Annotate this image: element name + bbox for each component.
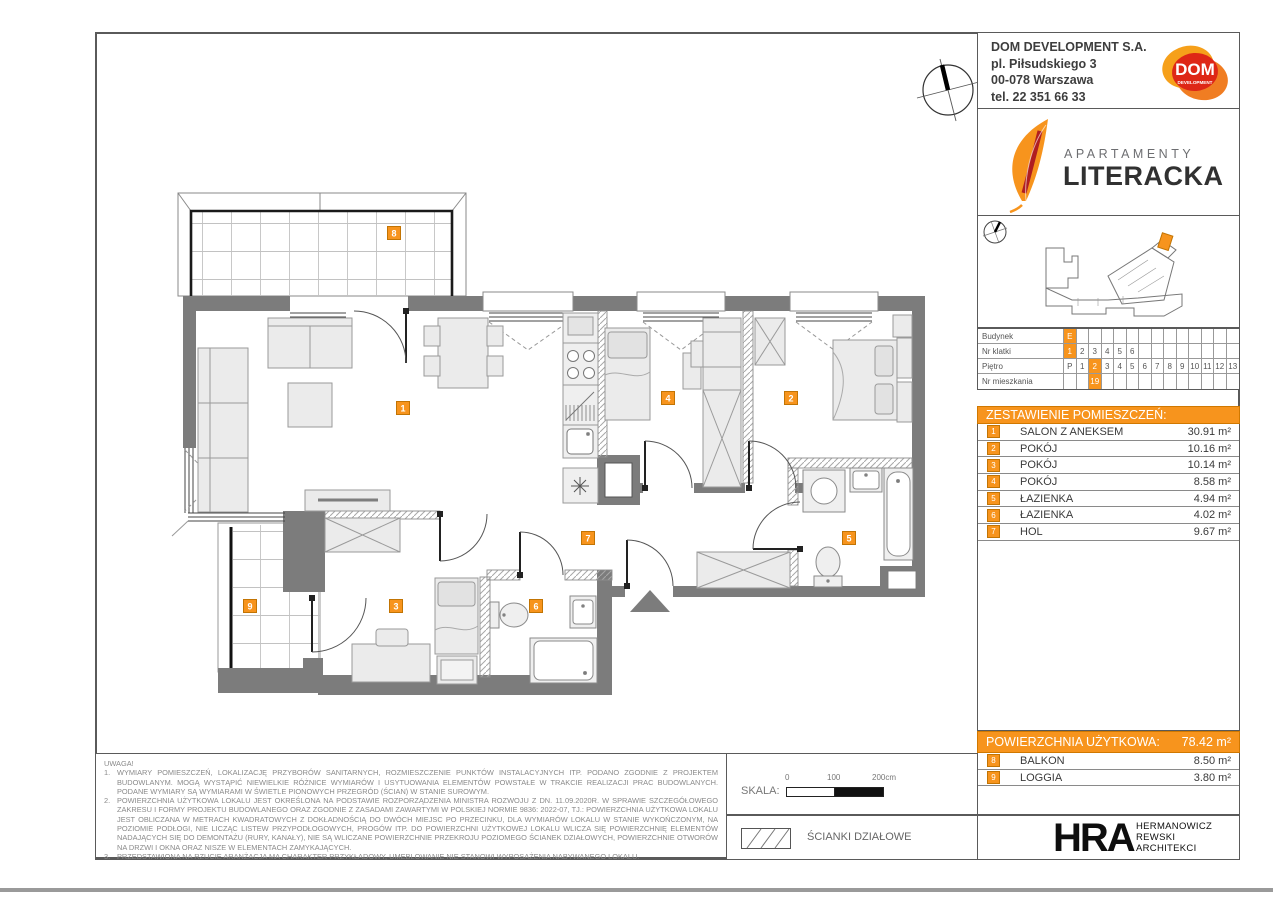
room2-furniture [755, 315, 912, 422]
architect-cell: HRA HERMANOWICZ REWSKI ARCHITEKCI [977, 815, 1240, 860]
badge-9: 9 [244, 600, 257, 613]
svg-text:2: 2 [788, 394, 793, 404]
legend-cell: ŚCIANKI DZIAŁOWE [726, 815, 978, 860]
scale-cell: SKALA: 0 100 200cm [726, 753, 978, 815]
scale-tick-100: 100 [827, 773, 840, 782]
svg-text:9: 9 [247, 602, 252, 612]
note-item: 2.POWIERZCHNIA UŻYTKOWA LOKALU JEST OKRE… [104, 796, 718, 852]
badge-3: 3 [390, 600, 403, 613]
svg-text:1: 1 [400, 404, 405, 414]
partition-wall-legend-icon [741, 828, 791, 849]
project-name-line1: APARTAMENTY [1064, 147, 1194, 161]
company-address2: 00-078 Warszawa [991, 72, 1147, 89]
mieszkanie-value: 19 [1089, 374, 1102, 389]
room-number-badge: 1 [987, 425, 1000, 438]
company-address1: pl. Piłsudskiego 3 [991, 56, 1147, 73]
room-row: 8BALKON8.50 m² [978, 753, 1239, 770]
badge-2: 2 [785, 392, 798, 405]
legend-label: ŚCIANKI DZIAŁOWE [807, 831, 912, 843]
project-name-line2: LITERACKA [1063, 163, 1224, 189]
room-number-badge: 3 [987, 459, 1000, 472]
company-name: DOM DEVELOPMENT S.A. [991, 39, 1147, 56]
room-row: 1SALON Z ANEKSEM30.91 m² [978, 424, 1239, 441]
klatka-selected: 1 [1064, 344, 1077, 358]
svg-text:7: 7 [585, 534, 590, 544]
badge-7: 7 [582, 532, 595, 545]
badge-4: 4 [662, 392, 675, 405]
svg-text:3: 3 [393, 602, 398, 612]
room-row: 9LOGGIA3.80 m² [978, 770, 1239, 787]
badge-5: 5 [843, 532, 856, 545]
unit-info-table: Budynek E Nr klatki 1 2 3 4 5 6 Piętro P… [977, 328, 1240, 390]
room-row: 2POKÓJ10.16 m² [978, 441, 1239, 458]
site-map [978, 216, 1241, 329]
room-number-badge: 4 [987, 475, 1000, 488]
feather-icon [996, 113, 1058, 213]
company-phone: tel. 22 351 66 33 [991, 89, 1147, 106]
kitchen [563, 313, 598, 503]
project-logo-cell: APARTAMENTY LITERACKA [977, 108, 1240, 216]
balcony [178, 193, 466, 296]
scale-tick-200: 200cm [872, 773, 896, 782]
usable-area-bar: POWIERZCHNIA UŻYTKOWA: 78.42 m² [977, 731, 1240, 753]
svg-text:6: 6 [533, 602, 538, 612]
room-row: 5ŁAZIENKA4.94 m² [978, 491, 1239, 508]
svg-text:8: 8 [391, 229, 396, 239]
scale-bar-white [786, 787, 836, 797]
badge-6: 6 [530, 600, 543, 613]
room3-furniture [352, 578, 478, 684]
room-row: 4POKÓJ8.58 m² [978, 474, 1239, 491]
svg-text:DEVELOPMENT: DEVELOPMENT [1178, 80, 1213, 85]
pietro-selected: 2 [1089, 359, 1102, 373]
badge-1: 1 [397, 402, 410, 415]
dom-development-logo-icon: DOM DEVELOPMENT [1158, 41, 1230, 103]
room-row: 6ŁAZIENKA4.02 m² [978, 507, 1239, 524]
bath5-shelf [888, 571, 916, 589]
table-row-mieszkanie: Nr mieszkania 19 [978, 374, 1239, 389]
entrance-arrow [630, 590, 670, 612]
room-number-badge: 8 [987, 754, 1000, 767]
scale-label: SKALA: [741, 785, 780, 797]
room-number-badge: 2 [987, 442, 1000, 455]
architect-logo: HRA [1053, 816, 1134, 861]
scale-bar-black [834, 787, 884, 797]
room-number-badge: 7 [987, 525, 1000, 538]
table-row-budynek: Budynek E [978, 329, 1239, 344]
room-number-badge: 9 [987, 771, 1000, 784]
budynek-value: E [1064, 329, 1077, 343]
note-item: 1.WYMIARY POMIESZCZEŃ, LOKALIZACJĘ PRZYB… [104, 768, 718, 796]
usable-area-label: POWIERZCHNIA UŻYTKOWA: [986, 735, 1160, 749]
svg-text:4: 4 [665, 394, 670, 404]
rooms-list: 1SALON Z ANEKSEM30.91 m² 2POKÓJ10.16 m² … [977, 424, 1240, 731]
bathroom6-fixtures [490, 596, 597, 683]
scale-tick-0: 0 [785, 773, 789, 782]
rooms-header: ZESTAWIENIE POMIESZCZEŃ: [977, 406, 1240, 424]
room-row: 7HOL9.67 m² [978, 524, 1239, 541]
architect-name: HERMANOWICZ REWSKI ARCHITEKCI [1136, 821, 1212, 854]
table-row-klatka: Nr klatki 1 2 3 4 5 6 [978, 344, 1239, 359]
drawing-sheet: 1 2 3 4 5 6 7 8 9 DOM DEVELOPMENT S.A. p… [0, 0, 1273, 900]
page-bottom-strip [0, 888, 1273, 892]
usable-area-value: 78.42 m² [1182, 735, 1231, 749]
note-item: 3.PRZEDSTAWIONA NA RZUCIE ARANŻACJA MA C… [104, 852, 718, 861]
room-number-badge: 6 [987, 509, 1000, 522]
badge-8: 8 [388, 227, 401, 240]
table-row-pietro: Piętro P 1 2 3 4 5 6 7 8 9 10 11 12 13 [978, 359, 1239, 374]
svg-text:5: 5 [846, 534, 851, 544]
outdoor-list: 8BALKON8.50 m² 9LOGGIA3.80 m² [977, 753, 1240, 815]
compass-icon [908, 45, 988, 125]
room-number-badge: 5 [987, 492, 1000, 505]
svg-text:DOM: DOM [1175, 60, 1215, 79]
notes-cell: UWAGA! 1.WYMIARY POMIESZCZEŃ, LOKALIZACJ… [95, 753, 727, 858]
site-map-cell [977, 215, 1240, 328]
room-row: 3POKÓJ10.14 m² [978, 457, 1239, 474]
shaft [605, 463, 632, 497]
floor-plan: 1 2 3 4 5 6 7 8 9 [95, 140, 940, 758]
company-cell: DOM DEVELOPMENT S.A. pl. Piłsudskiego 3 … [977, 32, 1240, 109]
company-address: DOM DEVELOPMENT S.A. pl. Piłsudskiego 3 … [991, 39, 1147, 105]
notes-title: UWAGA! [104, 759, 718, 768]
salon-furniture [198, 318, 503, 512]
